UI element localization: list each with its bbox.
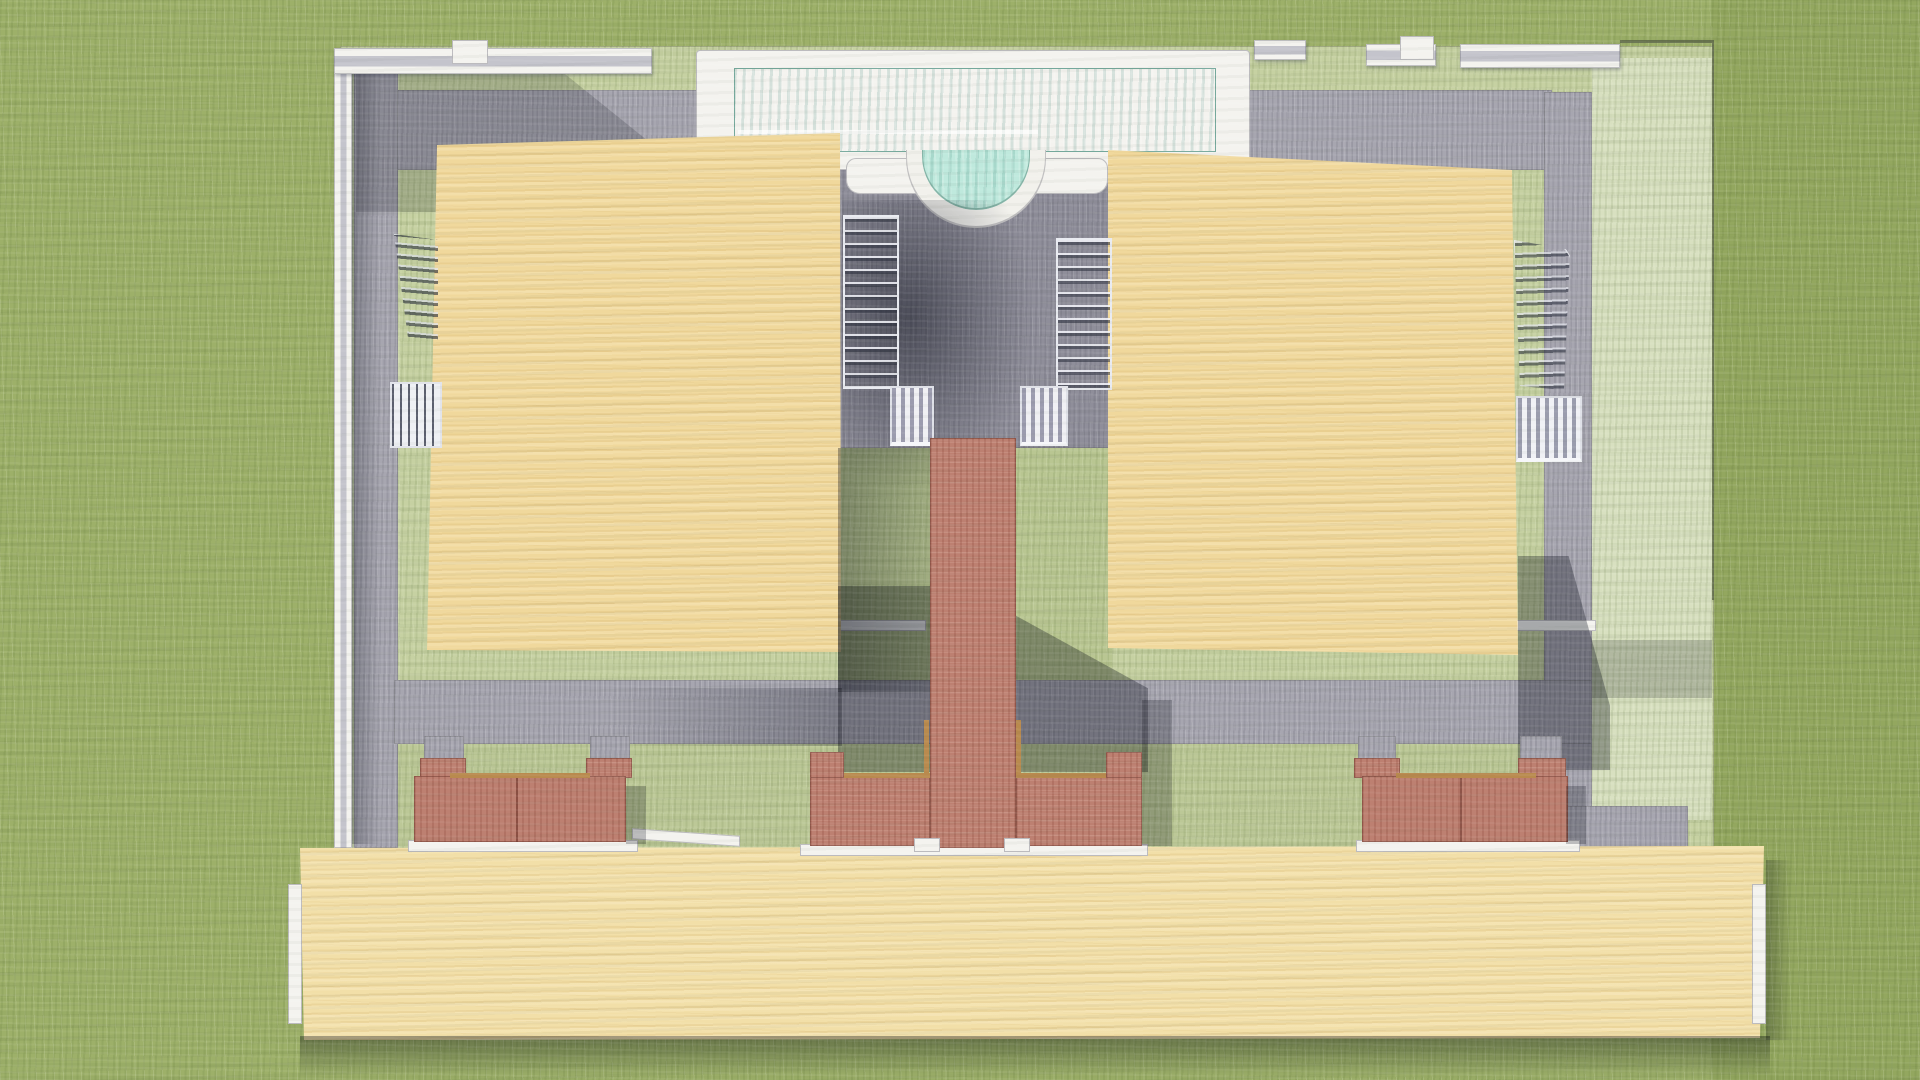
south-building-shadow xyxy=(300,1036,1770,1078)
terrace-wing-east xyxy=(1016,776,1142,846)
north-wall-east-segment-3 xyxy=(1460,44,1620,68)
inner-lawn-east-band xyxy=(1592,58,1712,820)
step-bar-west xyxy=(838,620,926,631)
courtyard-balcony-right xyxy=(1020,386,1068,446)
walkway-cap-rail-east xyxy=(1016,720,1021,776)
step-bar-east xyxy=(1516,620,1596,631)
west-wall-shadow xyxy=(352,60,380,844)
courtyard-stair-left xyxy=(843,215,899,389)
south-path-shadow xyxy=(612,688,842,746)
right-villa-side-balcony xyxy=(1516,396,1582,462)
north-boundary-line xyxy=(1620,40,1712,43)
terrace-step-west xyxy=(914,838,940,852)
terrace-step-east xyxy=(1004,838,1030,852)
east-boundary-line xyxy=(1712,40,1714,600)
north-wall-pier-west xyxy=(452,40,488,64)
terrace-step-block-east xyxy=(1106,752,1142,778)
terrace-wood-cap-west xyxy=(844,773,930,778)
site-plan-rendering xyxy=(0,0,1920,1080)
north-wall-west-segment xyxy=(334,48,652,74)
terrace-step-block-west xyxy=(810,752,844,778)
west-planter-shadow xyxy=(626,786,646,844)
north-wall-pier-east xyxy=(1400,36,1434,60)
terrace-shadow xyxy=(1142,700,1172,846)
west-planter-wall xyxy=(414,776,626,842)
terrace-wing-west xyxy=(810,776,930,846)
walkway-column xyxy=(930,438,1016,848)
right-villa-side-stairwell xyxy=(1514,240,1572,392)
terrace-wood-cap-east xyxy=(1016,773,1106,778)
south-building-west-cap xyxy=(288,884,302,1024)
south-building-east-cap xyxy=(1752,884,1766,1024)
east-planter-wall xyxy=(1362,776,1568,842)
east-planter-pillar-cap-1 xyxy=(1354,758,1400,778)
west-planter-pillar-cap-2 xyxy=(586,758,632,778)
pool-bench-ledge xyxy=(738,130,1038,134)
east-planter-shadow xyxy=(1566,786,1586,844)
left-villa-side-balcony xyxy=(390,382,442,448)
south-building-roof xyxy=(296,842,1766,1042)
right-villa-far-shadow xyxy=(1592,640,1712,698)
west-perimeter-wall xyxy=(334,48,352,848)
east-planter-wood-cap xyxy=(1396,773,1536,778)
walkway-cap-rail-west xyxy=(924,720,929,776)
left-villa-roof xyxy=(424,128,844,668)
north-wall-east-segment-1 xyxy=(1254,40,1306,60)
south-building-east-shadow xyxy=(1766,860,1792,1040)
courtyard-stair-right xyxy=(1056,238,1112,390)
west-planter-wood-cap xyxy=(450,773,590,778)
courtyard-balcony-left xyxy=(890,386,934,446)
right-villa-roof xyxy=(1098,128,1526,670)
